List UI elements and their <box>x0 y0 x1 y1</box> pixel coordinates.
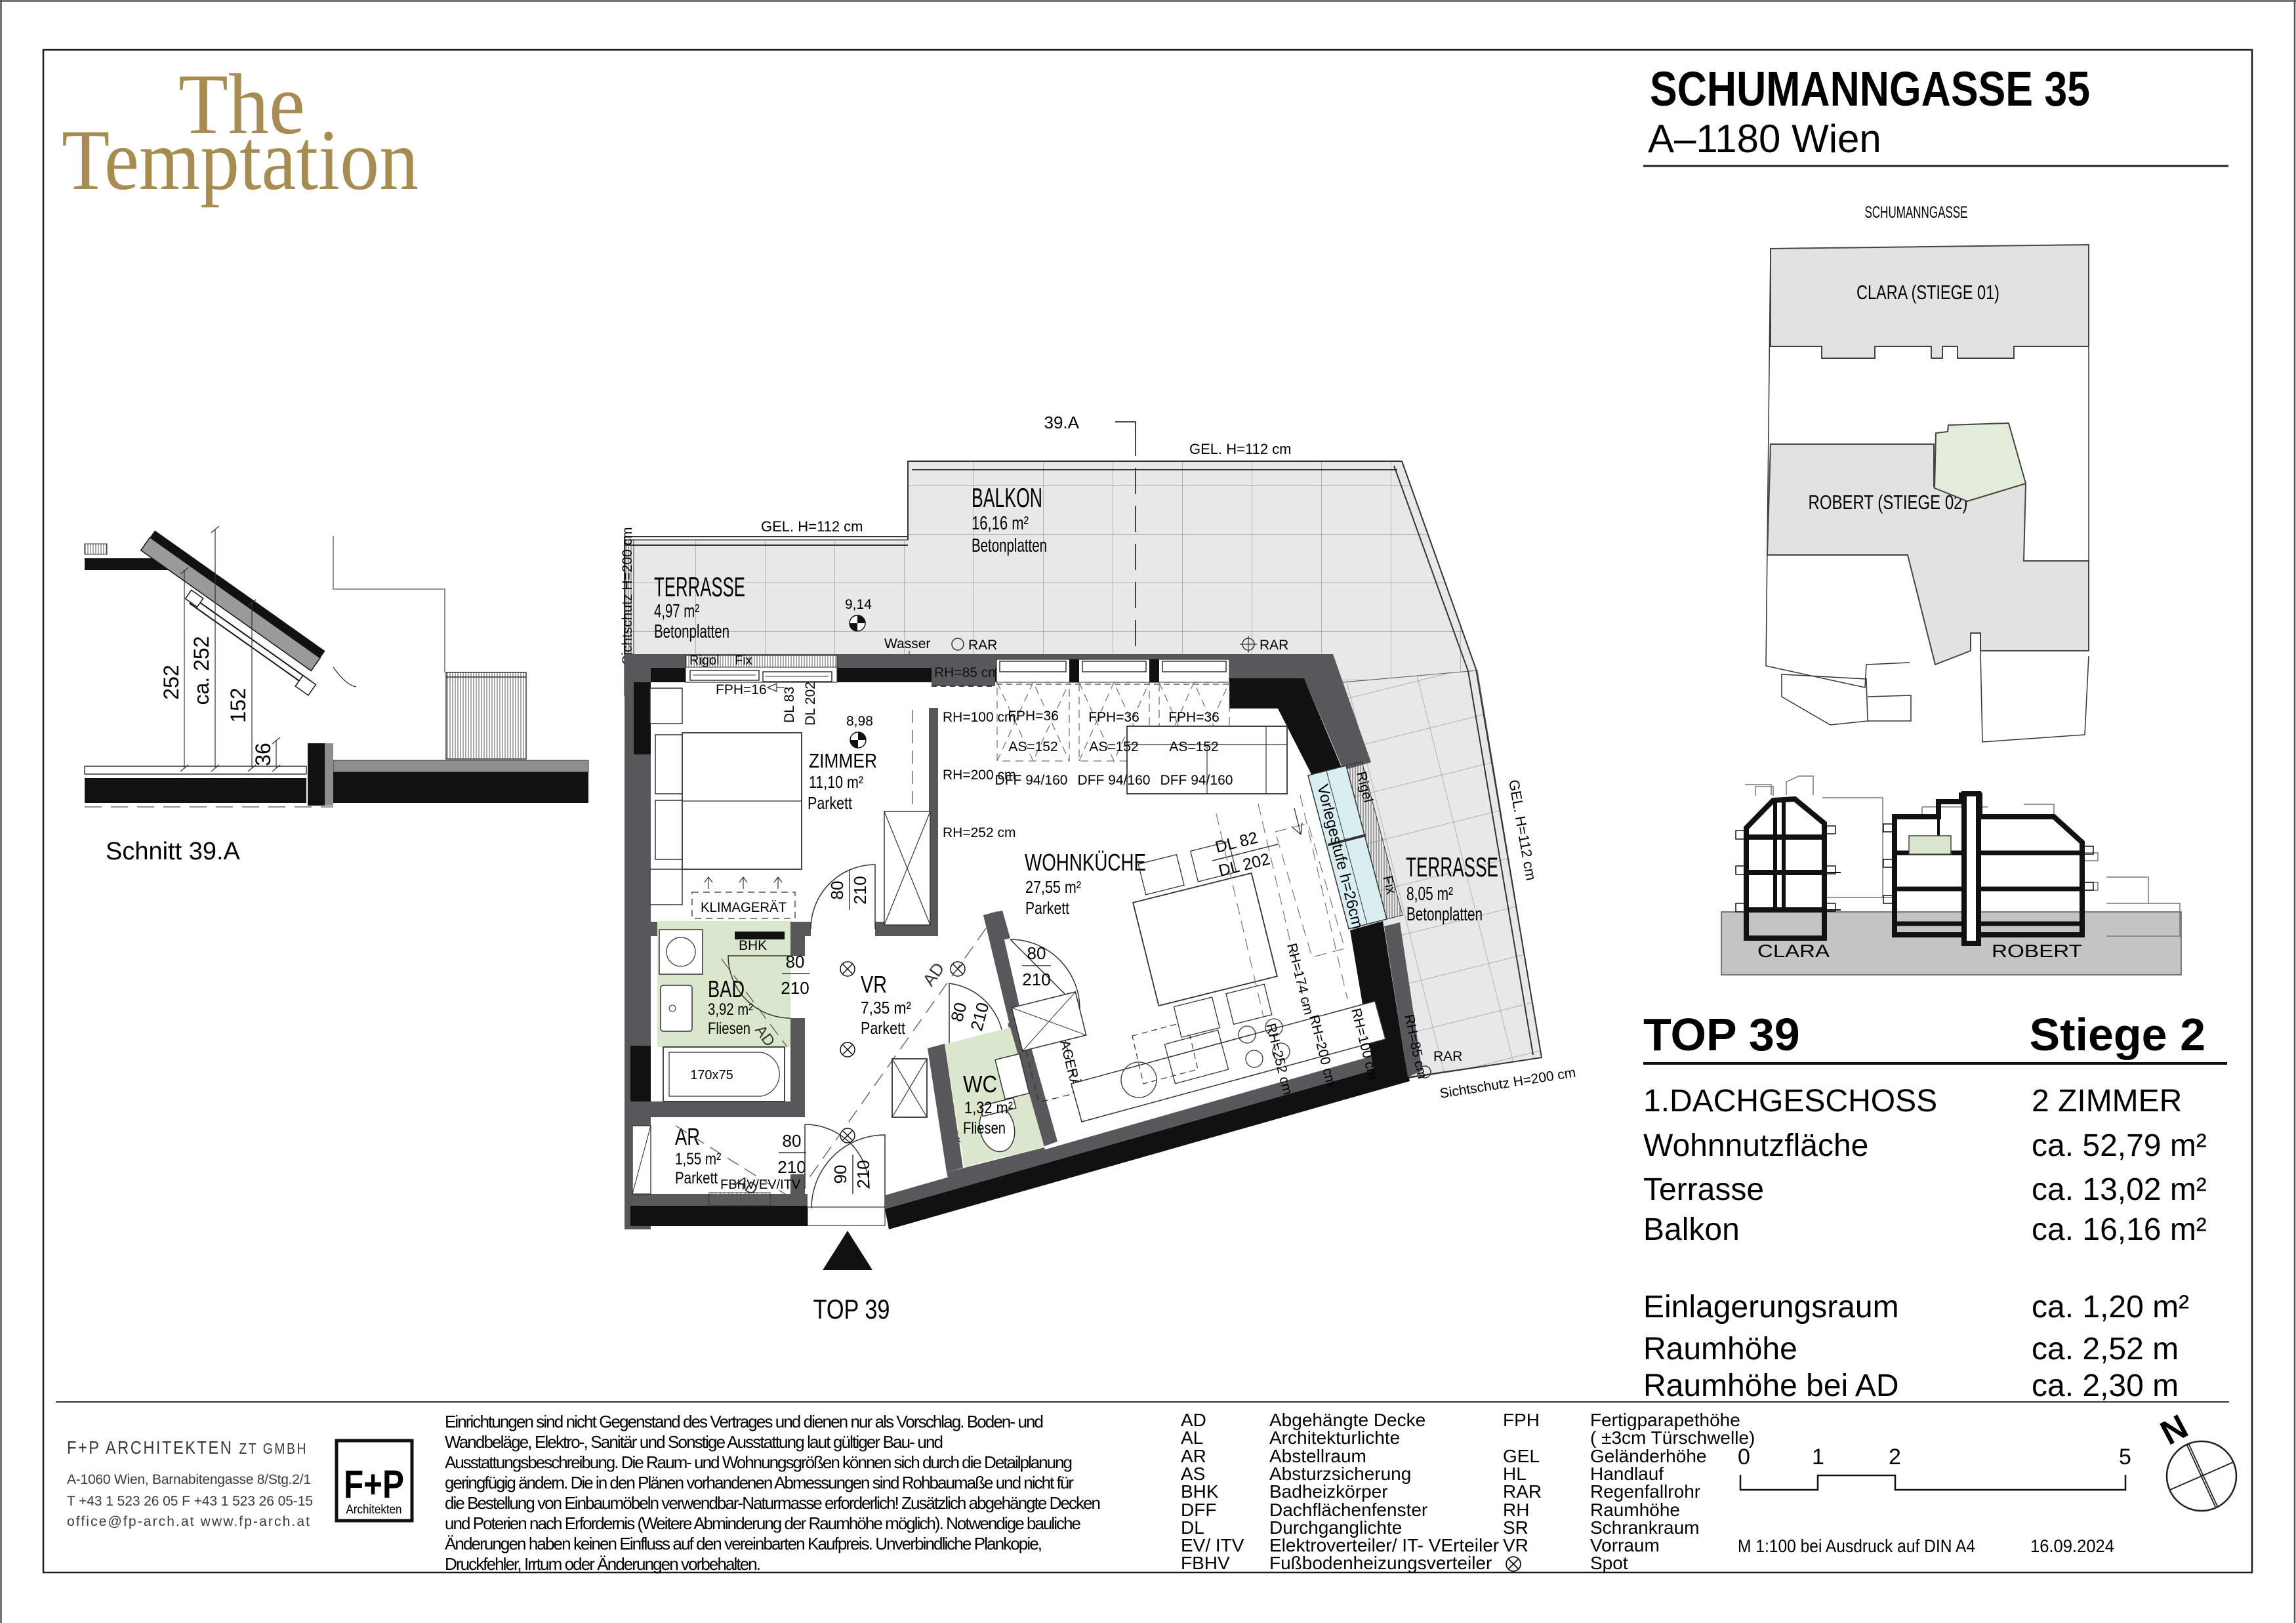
svg-text:80: 80 <box>827 881 847 900</box>
svg-text:Parkett: Parkett <box>808 793 853 813</box>
svg-text:FPH=36: FPH=36 <box>1088 710 1139 725</box>
svg-text:GEL. H=112 cm: GEL. H=112 cm <box>1506 779 1540 882</box>
svg-text:GEL. H=112 cm: GEL. H=112 cm <box>761 518 863 535</box>
svg-text:Fix: Fix <box>735 653 752 668</box>
svg-text:ca. 13,02 m²: ca. 13,02 m² <box>2032 1172 2207 1207</box>
svg-text:Betonplatten: Betonplatten <box>972 535 1047 556</box>
svg-text:DFF 94/160: DFF 94/160 <box>1160 773 1233 788</box>
svg-text:2 ZIMMER: 2 ZIMMER <box>2032 1084 2182 1119</box>
svg-text:11,10 m²: 11,10 m² <box>809 772 863 792</box>
svg-text:Rigol: Rigol <box>689 653 720 668</box>
svg-text:16.09.2024: 16.09.2024 <box>2030 1536 2114 1556</box>
svg-text:210: 210 <box>853 1160 873 1188</box>
svg-text:Architekturlichte: Architekturlichte <box>1269 1428 1400 1448</box>
svg-text:RH=85 cm: RH=85 cm <box>934 665 1000 680</box>
svg-text:Parkett: Parkett <box>1025 898 1070 918</box>
svg-text:210: 210 <box>781 978 809 998</box>
svg-text:210: 210 <box>1022 970 1050 989</box>
svg-text:A-1060 Wien, Barnabitengasse 8: A-1060 Wien, Barnabitengasse 8/Stg.2/1 <box>67 1472 311 1487</box>
svg-text:TERRASSE: TERRASSE <box>654 571 745 602</box>
svg-text:CLARA (STIEGE 01): CLARA (STIEGE 01) <box>1856 281 1999 304</box>
svg-text:ca. 2,30 m: ca. 2,30 m <box>2032 1368 2179 1403</box>
svg-text:36: 36 <box>251 743 275 766</box>
svg-text:152: 152 <box>226 688 250 722</box>
svg-text:( ±3cm Türschwelle): ( ±3cm Türschwelle) <box>1590 1428 1755 1448</box>
svg-text:90: 90 <box>830 1165 850 1184</box>
svg-text:Fliesen: Fliesen <box>708 1019 750 1038</box>
svg-text:AL: AL <box>1181 1428 1203 1448</box>
svg-text:TERRASSE: TERRASSE <box>1406 852 1498 882</box>
svg-text:9,14: 9,14 <box>845 597 872 612</box>
svg-text:F+P ARCHITEKTEN ZT GMBH: F+P ARCHITEKTEN ZT GMBH <box>67 1437 308 1458</box>
svg-text:BALKON: BALKON <box>972 482 1042 513</box>
svg-text:RH=200 cm: RH=200 cm <box>943 768 1015 783</box>
svg-text:0: 0 <box>1738 1445 1750 1469</box>
svg-text:ROBERT: ROBERT <box>1992 941 2082 961</box>
svg-text:4,97 m²: 4,97 m² <box>654 601 699 622</box>
svg-text:ca. 52,79 m²: ca. 52,79 m² <box>2032 1128 2207 1163</box>
svg-text:RAR: RAR <box>968 638 997 653</box>
svg-text:Betonplatten: Betonplatten <box>1406 904 1483 925</box>
svg-text:180x200: 180x200 <box>776 810 790 860</box>
svg-text:TOP 39: TOP 39 <box>1643 1009 1800 1060</box>
svg-text:N: N <box>2154 1408 2194 1453</box>
svg-text:GEL. H=112 cm: GEL. H=112 cm <box>1189 441 1292 457</box>
svg-text:7,35 m²: 7,35 m² <box>861 998 911 1017</box>
svg-text:8,98: 8,98 <box>846 714 873 729</box>
svg-text:RAR: RAR <box>1260 638 1288 653</box>
svg-text:210: 210 <box>777 1157 806 1177</box>
svg-text:FBHV: FBHV <box>1181 1553 1230 1573</box>
svg-text:1.DACHGESCHOSS: 1.DACHGESCHOSS <box>1643 1084 1937 1119</box>
svg-text:ZIMMER: ZIMMER <box>809 749 877 772</box>
svg-text:ca. 2,52 m: ca. 2,52 m <box>2032 1332 2179 1366</box>
svg-text:SCHUMANNGASSE 35: SCHUMANNGASSE 35 <box>1650 62 2090 116</box>
svg-text:Architekten: Architekten <box>346 1503 402 1517</box>
svg-text:VR: VR <box>1503 1535 1528 1555</box>
svg-text:80: 80 <box>1027 943 1046 963</box>
svg-text:die Bestellung von Einbaumöbel: die Bestellung von Einbaumöbeln verwendb… <box>445 1493 1101 1513</box>
svg-text:Betonplatten: Betonplatten <box>654 621 729 642</box>
svg-text:8,05 m²: 8,05 m² <box>1406 884 1453 905</box>
svg-text:ca. 1,20 m²: ca. 1,20 m² <box>2032 1290 2189 1325</box>
svg-text:Sichtschutz H=200 cm: Sichtschutz H=200 cm <box>620 527 635 665</box>
svg-text:3,92 m²: 3,92 m² <box>708 1000 753 1019</box>
svg-text:5: 5 <box>2119 1445 2131 1469</box>
svg-text:RH=252 cm: RH=252 cm <box>943 825 1015 840</box>
svg-text:geringfügig ändern. Die in den: geringfügig ändern. Die in den Plänen vo… <box>445 1473 1074 1492</box>
svg-text:Einlagerungsraum: Einlagerungsraum <box>1643 1290 1899 1325</box>
svg-text:Wohnnutzfläche: Wohnnutzfläche <box>1643 1128 1868 1163</box>
svg-text:T +43 1 523 26 05 F +43 1 52: T +43 1 523 26 05 F +43 1 523 26 05-15 <box>67 1494 313 1509</box>
svg-text:AR: AR <box>675 1123 700 1150</box>
svg-text:16,16 m²: 16,16 m² <box>972 513 1029 534</box>
svg-text:FPH: FPH <box>1503 1410 1540 1430</box>
svg-text:1,55 m²: 1,55 m² <box>675 1150 721 1168</box>
svg-text:VR: VR <box>861 971 887 998</box>
svg-text:Raumhöhe bei AD: Raumhöhe bei AD <box>1643 1368 1899 1403</box>
svg-text:SCHUMANNGASSE: SCHUMANNGASSE <box>1865 203 1968 222</box>
svg-text:27,55 m²: 27,55 m² <box>1025 877 1081 897</box>
svg-text:DL 83: DL 83 <box>782 687 797 723</box>
svg-text:Stiege 2: Stiege 2 <box>2030 1009 2205 1060</box>
svg-text:Schnitt 39.A: Schnitt 39.A <box>106 838 241 865</box>
svg-text:AS=152: AS=152 <box>1008 739 1057 754</box>
svg-text:CLARA: CLARA <box>1757 941 1830 961</box>
svg-text:DFF 94/160: DFF 94/160 <box>1078 773 1151 788</box>
svg-text:170x75: 170x75 <box>690 1068 733 1082</box>
svg-text:DL 202: DL 202 <box>803 682 818 726</box>
svg-text:1,32 m²: 1,32 m² <box>964 1099 1013 1117</box>
svg-text:ROBERT (STIEGE 02): ROBERT (STIEGE 02) <box>1809 491 1968 514</box>
svg-text:39.A: 39.A <box>1044 413 1080 432</box>
svg-text:RAR: RAR <box>1503 1481 1542 1502</box>
svg-text:Wasser: Wasser <box>884 636 930 651</box>
svg-text:FPH=36: FPH=36 <box>1168 710 1220 725</box>
svg-text:Badheizkörper: Badheizkörper <box>1269 1481 1388 1502</box>
svg-text:RAR: RAR <box>1433 1049 1462 1064</box>
svg-text:ca. 252: ca. 252 <box>190 636 213 705</box>
svg-text:FBHV/EV/ITV: FBHV/EV/ITV <box>720 1178 801 1192</box>
svg-text:80: 80 <box>783 1131 802 1151</box>
svg-text:FPH=16: FPH=16 <box>716 682 767 697</box>
svg-text:F+P: F+P <box>344 1462 404 1506</box>
svg-text:AS=152: AS=152 <box>1089 739 1138 754</box>
svg-text:Wandbeläge, Elektro-, Sanitär: Wandbeläge, Elektro-, Sanitär und Sonsti… <box>445 1432 943 1452</box>
svg-text:252: 252 <box>159 665 183 699</box>
svg-text:80: 80 <box>786 952 805 972</box>
svg-text:Ausstattungsbeschreibung. Die: Ausstattungsbeschreibung. Die Raum- und … <box>445 1452 1073 1472</box>
svg-text:ca. 16,16 m²: ca. 16,16 m² <box>2032 1212 2207 1247</box>
svg-text:BHK: BHK <box>1181 1481 1219 1502</box>
svg-text:TOP 39: TOP 39 <box>813 1294 890 1325</box>
svg-text:Balkon: Balkon <box>1643 1212 1740 1247</box>
svg-text:Parkett: Parkett <box>861 1018 906 1038</box>
svg-text:RH=100 cm: RH=100 cm <box>943 710 1015 725</box>
svg-text:Druckfehler, Irrtum oder Änder: Druckfehler, Irrtum oder Änderungen vorb… <box>445 1554 761 1574</box>
svg-text:Terrasse: Terrasse <box>1643 1172 1764 1207</box>
svg-text:AS=152: AS=152 <box>1169 739 1218 754</box>
svg-text:210: 210 <box>850 876 870 904</box>
svg-text:Spot: Spot <box>1590 1553 1628 1573</box>
svg-text:Raumhöhe: Raumhöhe <box>1643 1332 1797 1366</box>
svg-text:BHK: BHK <box>739 938 767 953</box>
svg-text:office@fp-arch.at www.fp-a: office@fp-arch.at www.fp-arch.at <box>67 1514 310 1529</box>
svg-text:WC: WC <box>963 1071 997 1098</box>
svg-text:BAD: BAD <box>708 976 745 1002</box>
svg-text:A–1180 Wien: A–1180 Wien <box>1648 117 1881 161</box>
svg-text:Einrichtungen sind nicht Gegen: Einrichtungen sind nicht Gegenstand des … <box>445 1412 1044 1431</box>
svg-text:1: 1 <box>1812 1445 1824 1469</box>
svg-text:KLIMAGERÄT: KLIMAGERÄT <box>701 900 787 915</box>
svg-text:WOHNKÜCHE: WOHNKÜCHE <box>1025 849 1146 876</box>
svg-text:Regenfallrohr: Regenfallrohr <box>1590 1481 1700 1502</box>
svg-text:Temptation: Temptation <box>62 112 419 208</box>
svg-text:2: 2 <box>1889 1445 1901 1469</box>
svg-text:Parkett: Parkett <box>675 1169 718 1187</box>
svg-text:Änderungen haben keinen Einflu: Änderungen haben keinen Einfluss auf den… <box>445 1534 1042 1553</box>
svg-text:und Poterien nach Erfordernis: und Poterien nach Erfordernis (Weitere A… <box>445 1513 1081 1533</box>
svg-text:Fliesen: Fliesen <box>963 1119 1006 1138</box>
svg-text:Fußbodenheizungsverteiler: Fußbodenheizungsverteiler <box>1269 1553 1492 1573</box>
svg-text:M 1:100 bei Ausdruck auf DIN A: M 1:100 bei Ausdruck auf DIN A4 <box>1738 1536 1975 1556</box>
